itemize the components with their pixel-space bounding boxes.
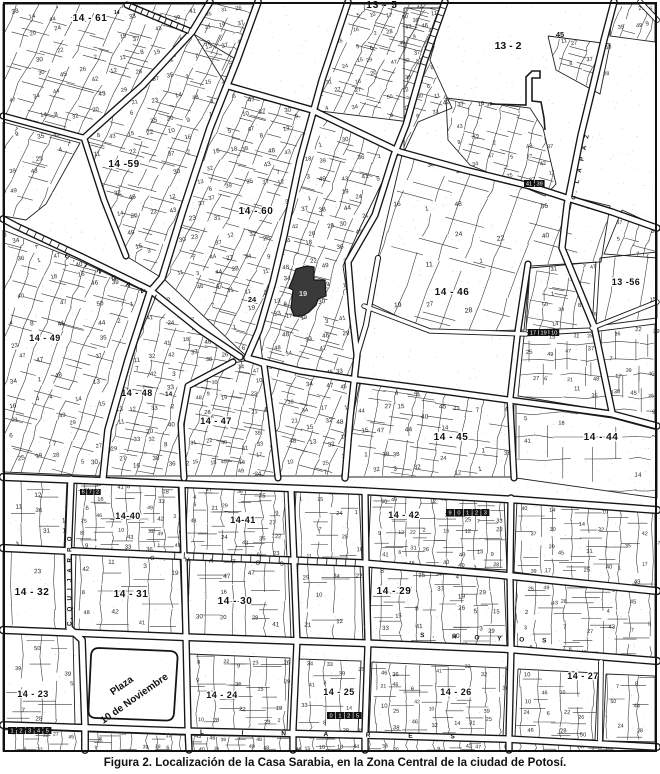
svg-text:15: 15 [397,403,405,410]
svg-text:39: 39 [255,430,261,436]
svg-text:31: 31 [586,549,593,555]
svg-text:39: 39 [9,168,16,175]
svg-text:33: 33 [327,662,333,668]
svg-text:14 - 48: 14 - 48 [121,388,153,398]
svg-text:26: 26 [458,605,466,612]
svg-text:10: 10 [560,690,566,696]
svg-text:14 - 23: 14 - 23 [17,689,49,699]
svg-text:22: 22 [275,534,281,540]
svg-text:2: 2 [96,490,99,496]
svg-text:27: 27 [96,443,103,450]
svg-text:41: 41 [272,621,280,628]
svg-text:20: 20 [549,544,555,550]
svg-text:27: 27 [334,87,341,94]
svg-text:31: 31 [469,720,476,726]
svg-text:44: 44 [358,409,365,415]
svg-text:17: 17 [544,568,551,574]
svg-text:43: 43 [127,535,134,541]
svg-text:16: 16 [355,79,362,86]
svg-text:11: 11 [93,151,101,159]
svg-text:6: 6 [193,502,196,508]
svg-text:38: 38 [206,357,214,364]
svg-text:17: 17 [642,561,648,567]
svg-text:14 - 47: 14 - 47 [200,416,232,426]
svg-text:7: 7 [477,519,480,525]
svg-text:47: 47 [19,353,26,360]
svg-text:46: 46 [96,513,102,519]
svg-text:5: 5 [356,714,359,720]
svg-text:19: 19 [171,570,179,577]
svg-text:19: 19 [341,188,349,195]
svg-text:44: 44 [98,319,106,327]
svg-text:33: 33 [432,109,439,116]
svg-text:14 - 42: 14 - 42 [388,510,420,520]
svg-text:25: 25 [486,717,492,723]
svg-text:1: 1 [299,496,302,502]
svg-text:36: 36 [336,243,344,251]
svg-text:50: 50 [96,300,104,308]
svg-text:47: 47 [590,264,597,271]
svg-text:41: 41 [524,439,531,445]
svg-text:40: 40 [221,440,227,447]
svg-text:14 - 49: 14 - 49 [29,333,61,343]
svg-text:39: 39 [412,17,419,24]
svg-text:26: 26 [578,715,584,721]
svg-text:42: 42 [539,161,546,168]
svg-text:48: 48 [336,419,344,427]
svg-text:32: 32 [149,354,157,360]
svg-text:22: 22 [206,438,213,445]
svg-text:21: 21 [11,417,18,423]
svg-text:11: 11 [425,261,433,269]
svg-text:7: 7 [318,527,321,533]
svg-text:26: 26 [135,69,142,76]
svg-text:49: 49 [238,468,245,475]
svg-text:46: 46 [392,682,398,688]
svg-text:37: 37 [588,346,595,352]
svg-text:18: 18 [305,156,312,163]
svg-text:39: 39 [221,737,227,742]
svg-text:42: 42 [414,699,420,705]
svg-text:32: 32 [481,672,488,678]
svg-text:49: 49 [147,505,153,511]
svg-text:9: 9 [237,663,241,669]
svg-text:5: 5 [46,729,49,735]
svg-text:36: 36 [540,203,548,211]
svg-text:21: 21 [291,418,298,425]
svg-text:9: 9 [390,113,394,119]
svg-text:12: 12 [465,529,471,535]
svg-text:15: 15 [361,427,369,435]
svg-text:40: 40 [17,293,24,299]
svg-text:37: 37 [486,102,493,109]
svg-text:10: 10 [524,672,531,678]
svg-text:29: 29 [120,87,127,94]
svg-text:24: 24 [523,710,529,716]
svg-text:23: 23 [251,391,257,397]
svg-text:47: 47 [253,368,260,375]
svg-text:28: 28 [637,728,643,734]
svg-text:13 -56: 13 -56 [612,277,641,287]
svg-text:11: 11 [177,270,184,277]
svg-text:3: 3 [173,514,176,520]
svg-text:9: 9 [491,552,494,558]
svg-text:47: 47 [377,427,385,434]
svg-text:3: 3 [28,729,31,735]
svg-text:9: 9 [449,511,452,517]
svg-text:49: 49 [175,543,181,549]
svg-text:50: 50 [381,499,387,505]
svg-text:22: 22 [564,710,571,716]
svg-text:33: 33 [496,518,503,524]
svg-text:8: 8 [578,303,582,309]
svg-text:26: 26 [308,231,315,238]
svg-text:14: 14 [579,522,585,528]
svg-text:49: 49 [543,585,549,591]
svg-text:27: 27 [587,629,594,635]
svg-text:24: 24 [221,535,228,541]
svg-text:9: 9 [196,678,199,684]
svg-text:8: 8 [648,621,652,627]
svg-text:4: 4 [395,390,399,397]
svg-text:7: 7 [609,356,613,362]
svg-text:47: 47 [53,253,61,260]
svg-text:1: 1 [157,543,160,549]
svg-text:48: 48 [289,437,297,445]
svg-text:14: 14 [346,706,352,712]
svg-text:39: 39 [338,671,345,678]
svg-text:28: 28 [603,71,609,77]
svg-text:11: 11 [561,38,568,45]
svg-text:25: 25 [528,587,534,593]
svg-text:37: 37 [301,205,309,213]
svg-text:9: 9 [275,511,279,517]
svg-text:15: 15 [99,401,106,408]
svg-text:50: 50 [580,732,586,738]
svg-text:13: 13 [197,179,204,186]
svg-text:30: 30 [38,70,45,77]
svg-text:6: 6 [82,490,85,496]
svg-text:10: 10 [316,593,323,599]
svg-text:40: 40 [521,506,527,512]
svg-text:10: 10 [551,331,557,337]
svg-text:27: 27 [354,87,361,94]
svg-text:43: 43 [456,124,463,131]
svg-text:16: 16 [393,201,401,209]
svg-text:29: 29 [284,679,290,685]
svg-text:18: 18 [210,460,217,467]
svg-text:17: 17 [386,12,393,19]
svg-text:Figura 2. Localización de la C: Figura 2. Localización de la Casa Sarabi… [104,756,567,769]
svg-text:30: 30 [91,459,99,467]
svg-text:36: 36 [392,672,399,678]
svg-text:45: 45 [221,459,227,465]
svg-text:37: 37 [586,57,593,63]
svg-text:42: 42 [641,531,647,537]
svg-text:46: 46 [381,671,387,677]
svg-text:15: 15 [493,609,501,615]
svg-text:25: 25 [583,567,590,573]
svg-text:15: 15 [395,613,402,619]
svg-text:42: 42 [292,224,299,230]
svg-text:35: 35 [259,536,266,542]
svg-text:14 - 27: 14 - 27 [567,671,599,681]
svg-text:15: 15 [205,79,212,86]
svg-text:31: 31 [221,7,228,14]
svg-text:45: 45 [556,30,564,39]
svg-text:7: 7 [631,628,634,634]
svg-text:21: 21 [304,622,312,629]
svg-text:29: 29 [479,589,486,596]
svg-text:14: 14 [165,391,173,398]
svg-text:37: 37 [457,102,464,108]
svg-text:37: 37 [437,586,445,593]
svg-text:22: 22 [496,235,505,243]
svg-text:48: 48 [282,331,290,339]
svg-text:17: 17 [530,331,536,337]
svg-text:28: 28 [213,718,219,724]
svg-text:15: 15 [357,57,364,64]
svg-text:8: 8 [80,531,83,537]
svg-text:42: 42 [111,609,119,616]
svg-text:21: 21 [212,506,219,512]
svg-text:41: 41 [139,620,145,626]
svg-text:48: 48 [454,201,462,209]
svg-text:24: 24 [336,511,342,517]
svg-text:39: 39 [536,182,542,188]
svg-text:31: 31 [213,214,221,222]
svg-text:43: 43 [98,90,106,98]
svg-text:43: 43 [242,540,249,546]
svg-text:50: 50 [402,14,409,21]
svg-text:27: 27 [533,376,539,382]
svg-text:23: 23 [34,568,42,575]
svg-text:13: 13 [337,745,343,751]
svg-text:39: 39 [319,158,326,164]
svg-text:22: 22 [310,258,318,265]
svg-text:48: 48 [196,395,202,401]
svg-text:45: 45 [558,550,564,556]
svg-text:48: 48 [190,518,196,524]
svg-text:32: 32 [431,723,437,729]
svg-text:24: 24 [618,723,624,729]
svg-text:31: 31 [190,440,197,447]
svg-text:19: 19 [153,49,161,56]
svg-text:23: 23 [252,660,258,666]
svg-text:49: 49 [319,176,327,183]
svg-text:C. Q U I J A R R O: C. Q U I J A R R O [67,534,74,626]
svg-text:14: 14 [634,472,642,479]
svg-text:39: 39 [225,183,232,190]
svg-text:14 - 61: 14 - 61 [73,13,108,24]
svg-text:43: 43 [155,26,162,33]
svg-text:25: 25 [393,709,399,715]
svg-text:14 - 45: 14 - 45 [434,432,469,443]
svg-text:38: 38 [393,452,400,459]
svg-text:42: 42 [150,372,157,378]
svg-text:44: 44 [405,426,413,433]
svg-text:40: 40 [443,560,450,566]
svg-text:11: 11 [262,269,269,276]
svg-text:33: 33 [301,703,307,709]
svg-text:10: 10 [381,704,388,710]
svg-text:6: 6 [544,376,547,382]
svg-text:10: 10 [525,699,532,705]
svg-text:13: 13 [477,549,484,555]
svg-text:37: 37 [95,353,102,360]
svg-text:14 - 44: 14 - 44 [584,432,619,443]
svg-text:46: 46 [209,735,215,741]
svg-text:19: 19 [299,289,307,298]
svg-text:48: 48 [83,610,90,616]
svg-text:48: 48 [593,376,600,382]
svg-text:15: 15 [317,497,323,503]
svg-text:39: 39 [142,744,148,750]
svg-text:1: 1 [618,565,621,571]
svg-text:21: 21 [251,409,258,415]
svg-text:46: 46 [128,193,136,201]
svg-text:34: 34 [12,237,20,245]
svg-text:12: 12 [430,499,436,505]
svg-text:33: 33 [382,625,390,632]
svg-text:47: 47 [565,349,571,355]
svg-text:28: 28 [493,562,499,568]
svg-text:42: 42 [168,352,174,358]
svg-text:10: 10 [118,528,124,534]
svg-text:16: 16 [133,462,141,469]
svg-text:16: 16 [239,460,246,467]
svg-text:42: 42 [466,744,472,750]
svg-text:18: 18 [183,337,190,344]
svg-text:27: 27 [269,520,276,526]
svg-text:14: 14 [40,112,47,119]
svg-text:24: 24 [342,63,349,70]
svg-text:38: 38 [155,744,161,749]
svg-text:1: 1 [364,451,368,458]
svg-text:1: 1 [377,154,380,160]
svg-text:48: 48 [256,737,262,743]
svg-text:41: 41 [164,341,171,347]
svg-text:3: 3 [524,625,527,631]
svg-text:25: 25 [465,517,472,523]
svg-text:22: 22 [355,573,363,580]
svg-text:12: 12 [34,492,42,499]
svg-text:14: 14 [454,721,461,727]
svg-text:47: 47 [616,220,622,226]
svg-text:45: 45 [68,734,74,740]
svg-text:46: 46 [541,690,547,696]
svg-text:32: 32 [327,441,335,449]
svg-text:14-41: 14-41 [230,515,256,525]
svg-text:37: 37 [531,531,537,537]
svg-text:49: 49 [391,497,397,503]
svg-text:32: 32 [148,436,155,443]
svg-text:38: 38 [614,389,620,395]
svg-text:37: 37 [168,151,176,158]
svg-text:31: 31 [43,528,51,535]
svg-text:14: 14 [238,364,244,370]
svg-text:10: 10 [256,378,263,385]
svg-text:35: 35 [625,543,631,549]
svg-text:17: 17 [615,374,621,380]
svg-text:15: 15 [257,687,263,693]
svg-text:49: 49 [636,23,643,30]
svg-text:45: 45 [630,391,638,398]
svg-text:12: 12 [336,619,344,625]
svg-text:30: 30 [212,380,218,387]
svg-text:12: 12 [398,530,404,536]
svg-text:47: 47 [9,97,16,104]
svg-text:49: 49 [249,744,255,750]
svg-text:40: 40 [168,421,176,429]
svg-text:39: 39 [626,368,632,374]
svg-text:28: 28 [560,728,567,734]
svg-text:8: 8 [323,720,326,726]
svg-text:41: 41 [526,182,532,188]
svg-text:42: 42 [157,517,165,523]
svg-text:31: 31 [550,266,557,273]
svg-text:7: 7 [89,490,92,496]
svg-text:29: 29 [303,575,311,581]
svg-text:47: 47 [248,570,256,578]
svg-text:36: 36 [614,331,620,337]
svg-text:39: 39 [558,307,564,313]
svg-text:34: 34 [472,161,479,168]
svg-text:14 - 32: 14 - 32 [15,587,50,598]
svg-text:34: 34 [283,275,291,282]
svg-text:44: 44 [633,703,640,709]
svg-text:18: 18 [558,421,565,427]
svg-text:21: 21 [380,684,386,690]
svg-text:19: 19 [458,593,466,601]
svg-text:44: 44 [49,16,56,23]
svg-text:46: 46 [412,719,418,725]
svg-text:44: 44 [53,88,60,95]
svg-text:14 - 60: 14 - 60 [239,206,274,217]
svg-text:43: 43 [399,40,406,47]
svg-text:21: 21 [567,377,573,383]
svg-text:37: 37 [198,201,206,208]
svg-text:3: 3 [484,511,487,517]
svg-text:22: 22 [410,530,416,536]
svg-text:44: 44 [353,744,360,751]
svg-text:11: 11 [574,386,581,392]
svg-text:13 - 5: 13 - 5 [366,0,398,11]
svg-text:36: 36 [382,743,388,749]
svg-text:40: 40 [199,747,205,753]
svg-text:9: 9 [378,531,381,537]
svg-text:28: 28 [561,599,567,605]
svg-text:31: 31 [410,545,417,551]
svg-text:50: 50 [610,699,616,705]
svg-text:11: 11 [108,559,115,566]
svg-text:10: 10 [198,717,204,723]
svg-text:1: 1 [466,511,469,517]
svg-text:22: 22 [223,659,229,665]
svg-text:30: 30 [339,220,347,228]
svg-text:14 - 24: 14 - 24 [206,690,238,700]
svg-text:28: 28 [252,615,258,621]
svg-text:32: 32 [148,529,154,535]
svg-text:49: 49 [547,352,553,358]
svg-text:49: 49 [127,229,135,237]
svg-text:14 - 30: 14 - 30 [218,596,253,607]
svg-text:34: 34 [333,574,341,581]
svg-text:1: 1 [355,510,358,516]
svg-text:41: 41 [339,315,347,322]
svg-text:41: 41 [382,552,389,558]
svg-text:21: 21 [362,213,369,220]
